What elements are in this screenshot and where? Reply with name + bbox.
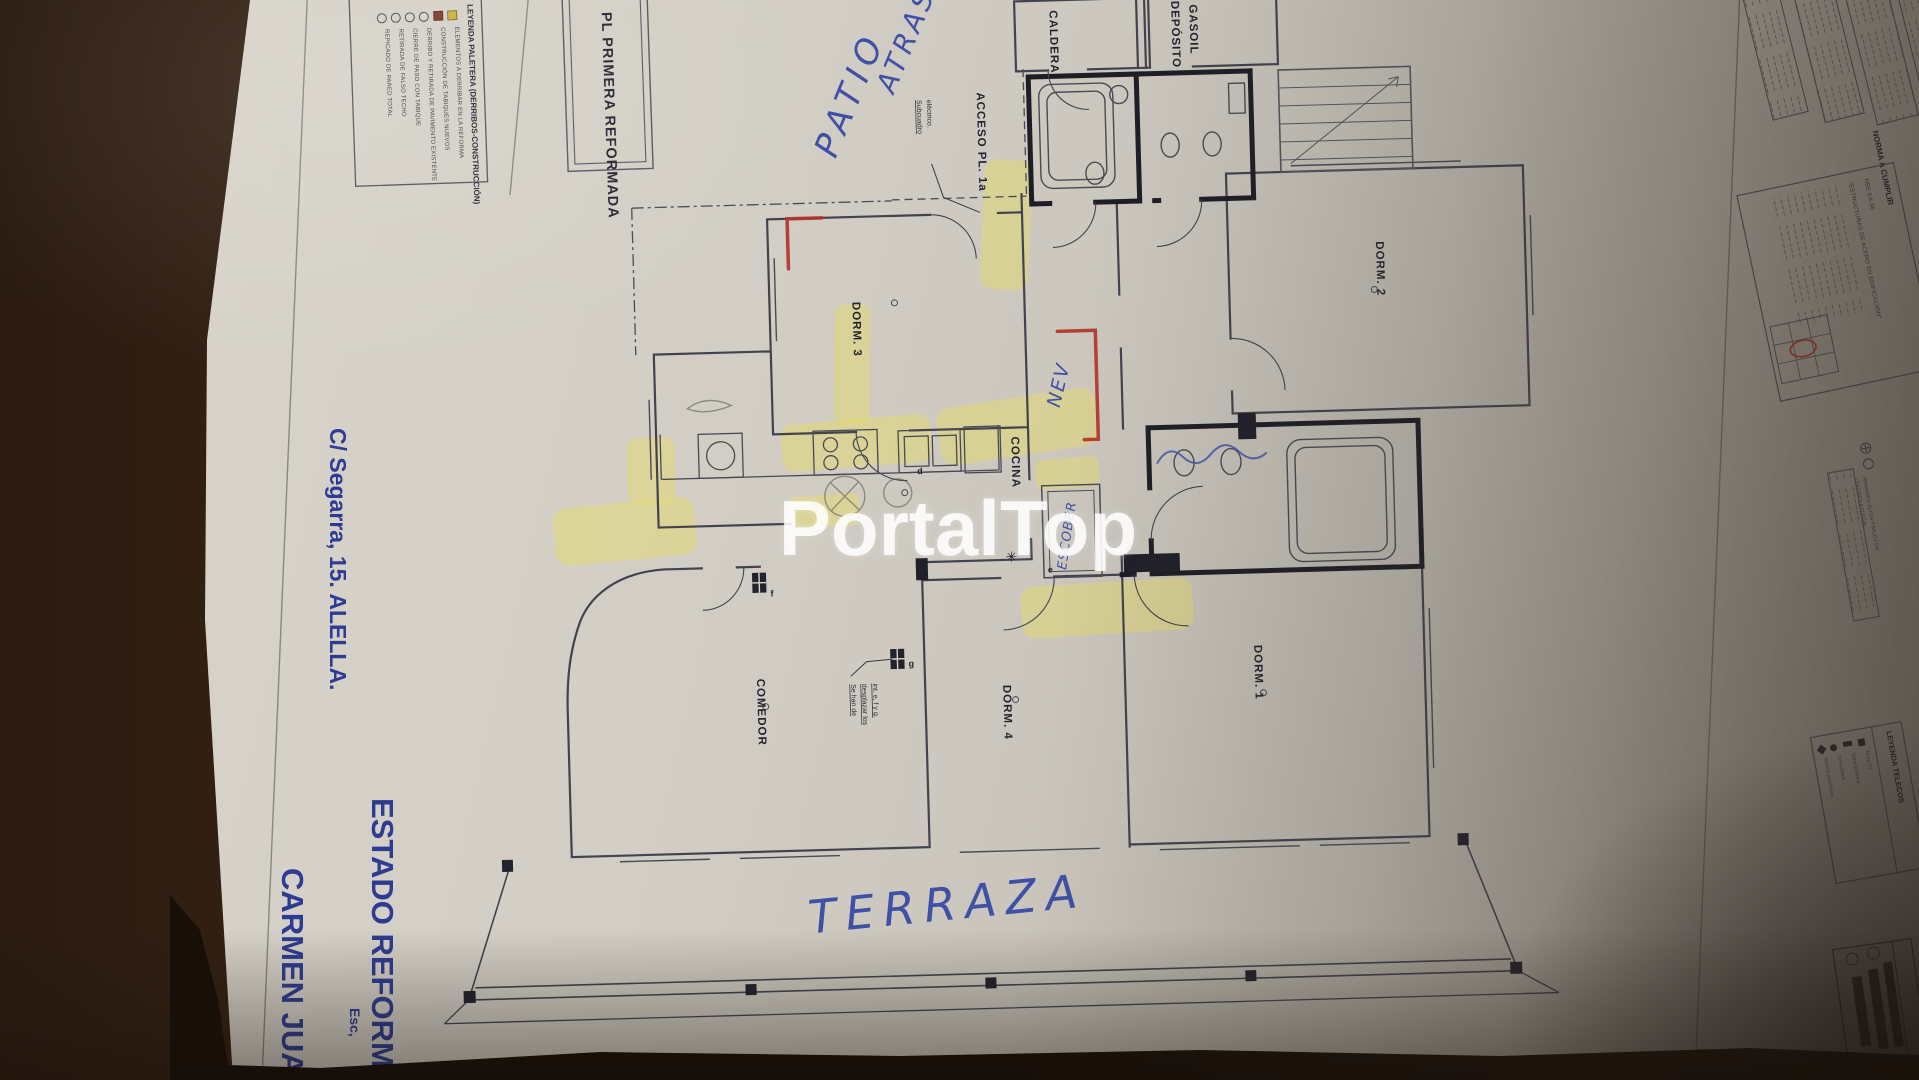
blue-pen-squiggle [1157,444,1267,464]
note-desplazar-2: desplazar los [860,684,868,726]
norma-line1: NBE EA-95 [1862,178,1875,211]
room-label-caldera: CALDERA [1046,10,1060,74]
mid-right-notes: ARMARIOS ALTOS Y BAJOS EN COLORES A ELEG… [1824,442,1900,621]
plan-title-box: PL PRIMERA REFORMADA [562,0,655,220]
legend-paletera-box: LEYENDA PALETERA (DERRIBOS-CONSTRUCCIÓN)… [348,0,489,209]
norma-title: NORMA A CUMPLIR [1871,130,1896,206]
telecos-legend-box: LEYENDA TELECOS Toma TV Toma teléfono To… [1810,722,1919,884]
handwriting-patio: PATIO [807,25,894,162]
switch-letter-g: g [908,658,914,668]
room-label-cocina: COCINA [1008,436,1021,488]
radiators [752,569,905,673]
status-title-text: ESTADO REFORMA [365,798,400,1080]
telecos-item: Toma TV [1863,750,1872,771]
scale-label-text: Esc, [347,1008,363,1037]
room-label-dorm2: DORM. 2 [1373,241,1387,296]
legend-item: CIERRE DE PASO CON TABIQUE [411,28,420,126]
room-label-dorm3: DORM. 3 [849,302,863,357]
legend-item: REPICADO DE PARED TOTAL [383,29,392,118]
stairs [1278,66,1413,172]
legend-paletera-items: ELEMENTOS A DERRIBAR EN LA REFORMA CONST… [383,27,464,183]
access-label: ACCESO PL. 1a [974,92,989,192]
room-label-dorm1: DORM. 1 [1251,645,1265,700]
legend-item: ELEMENTOS A DERRIBAR EN LA REFORMA [453,27,464,159]
photo-of-floor-plan: LEYENDA PALETERA (DERRIBOS-CONSTRUCCIÓN)… [0,0,1919,1080]
room-label-deposito-2: GASOIL [1186,4,1199,54]
titleblock-texts: C/ Segarra, 15. ALELLA. ESTADO REFORMA E… [275,428,400,1080]
legend-paletera-markers [377,11,457,23]
legend-item: CONSTRUCCIÓN DE TABIQUES NUEVOS [439,27,450,151]
telecos-item: Toma datos [1836,754,1846,781]
telecos-symbols [1816,737,1866,755]
switch-letter-f: f [770,588,774,598]
right-top-note-boxes [1685,0,1919,154]
telecos-item: Antena parabólica [1822,757,1835,798]
address-text: C/ Segarra, 15. ALELLA. [325,428,351,690]
room-label-dorm4: DORM. 4 [1000,685,1014,740]
note-desplazar-1: Se han de [849,684,857,716]
norma-box: NORMA A CUMPLIR NBE EA-95 "ESTRUCTURAS D… [1730,128,1919,401]
note-desplazar-3: int. e, f y g. [871,683,879,717]
handwriting-terraza: TERRAZA [806,863,1088,944]
switch-letter-d: d [917,466,923,476]
legend-item: DERRIBO Y RETIRADA DE PAVIMENTO EXISTENT… [425,28,436,182]
subcuadro-label-2: eléctrico. [925,100,933,128]
client-name-text: CARMEN JUAR [275,868,310,1080]
portaltop-watermark: PortalTop [779,483,1137,574]
legend-item: RETIRADA DE FALSO TECHO [397,29,406,117]
room-label-deposito-1: DEPÓSITO [1168,1,1183,69]
telecos-item: Toma teléfono [1850,752,1861,784]
subcuadro-label-1: Subcuadro [915,100,923,134]
telecos-title: LEYENDA TELECOS [1885,730,1907,804]
bottom-right-dark-legend [1833,939,1919,1080]
plan-title: PL PRIMERA REFORMADA [598,12,621,219]
legend-paletera-title: LEYENDA PALETERA (DERRIBOS-CONSTRUCCIÓN) [465,4,481,205]
room-label-comedor: COMEDOR [754,679,768,746]
terrace-railing [440,831,1559,1024]
